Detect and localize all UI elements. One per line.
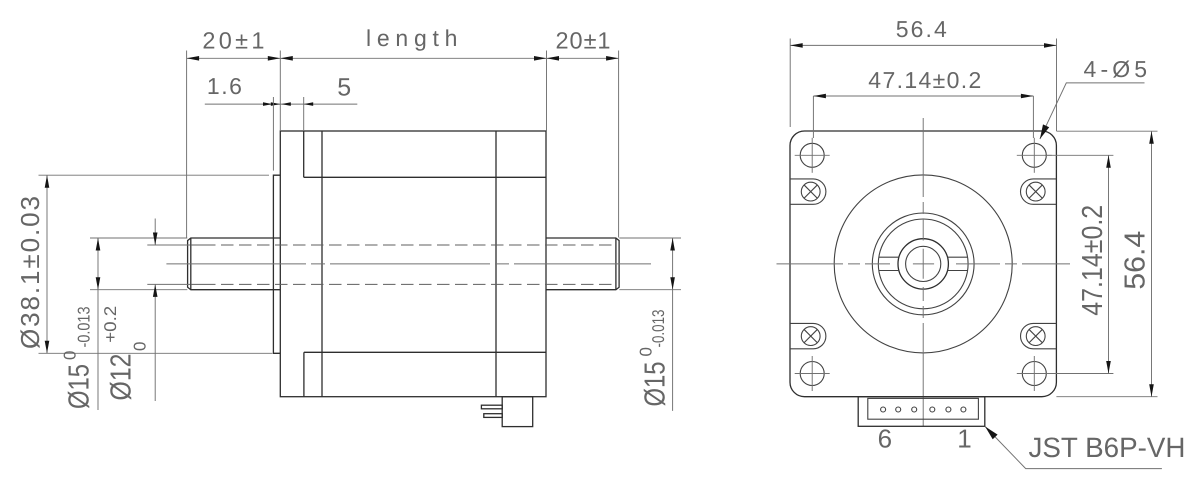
svg-text:47.14±0.2: 47.14±0.2 (1077, 205, 1109, 316)
svg-text:Ø15: Ø15 (640, 362, 672, 407)
svg-text:-0.013: -0.013 (649, 310, 668, 348)
svg-text:Ø12: Ø12 (106, 354, 138, 401)
svg-text:Ø15: Ø15 (64, 364, 96, 409)
svg-text:1.6: 1.6 (207, 73, 242, 99)
svg-text:56.4: 56.4 (1119, 231, 1151, 290)
svg-text:6: 6 (878, 424, 892, 454)
svg-text:length: length (366, 25, 458, 51)
svg-text:20±1: 20±1 (202, 28, 264, 54)
svg-text:JST B6P-VH: JST B6P-VH (1029, 432, 1186, 463)
svg-text:5: 5 (337, 74, 351, 102)
svg-text:0: 0 (61, 351, 80, 360)
svg-text:1: 1 (957, 424, 971, 454)
svg-text:20±1: 20±1 (556, 28, 611, 54)
svg-text:+0.2: +0.2 (101, 306, 120, 343)
svg-text:4-Ø5: 4-Ø5 (1084, 56, 1148, 82)
svg-text:47.14±0.2: 47.14±0.2 (868, 67, 981, 93)
svg-text:56.4: 56.4 (896, 16, 947, 42)
svg-text:0: 0 (131, 342, 150, 351)
svg-text:Ø38.1±0.03: Ø38.1±0.03 (15, 196, 45, 349)
svg-text:-0.013: -0.013 (75, 307, 94, 348)
